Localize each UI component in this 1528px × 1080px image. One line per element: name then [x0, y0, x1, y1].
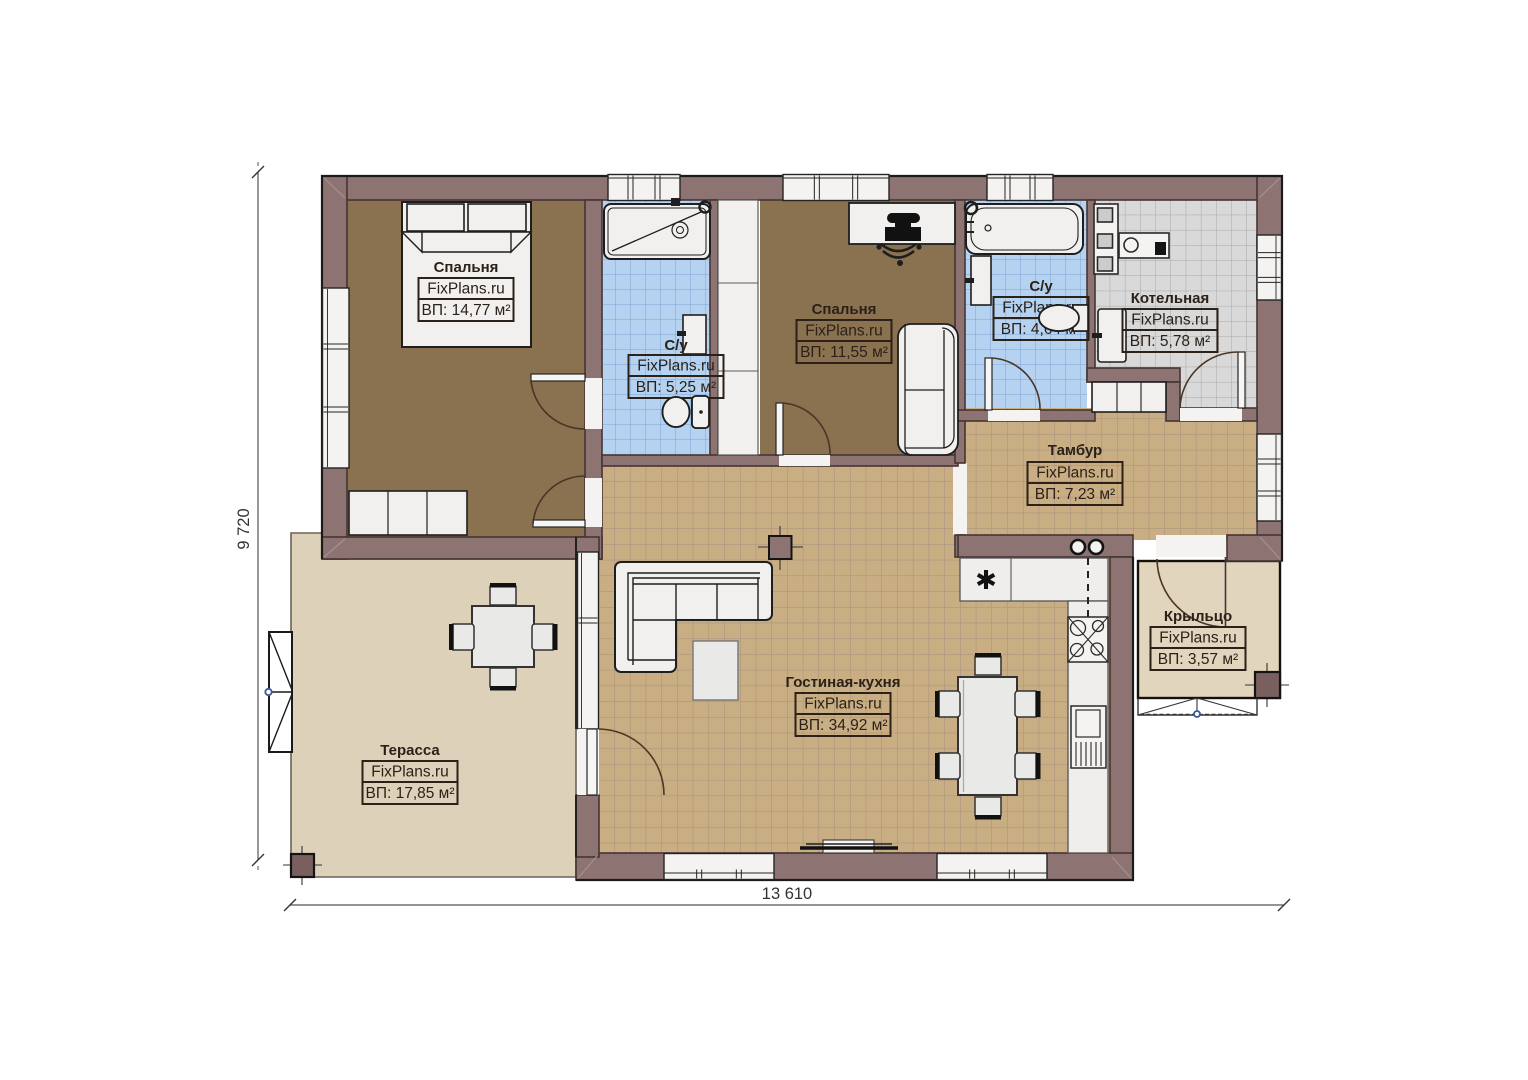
- svg-text:ВП: 7,23 м²: ВП: 7,23 м²: [1035, 486, 1115, 503]
- svg-text:FixPlans.ru: FixPlans.ru: [1131, 312, 1209, 329]
- svg-text:ВП: 11,55 м²: ВП: 11,55 м²: [800, 344, 888, 361]
- svg-text:FixPlans.ru: FixPlans.ru: [1159, 630, 1237, 647]
- svg-text:Тамбур: Тамбур: [1048, 442, 1102, 459]
- svg-text:✱: ✱: [975, 565, 997, 595]
- svg-text:Гостиная-кухня: Гостиная-кухня: [786, 674, 901, 691]
- svg-text:Спальня: Спальня: [812, 301, 877, 318]
- svg-text:ВП: 34,92 м²: ВП: 34,92 м²: [798, 717, 887, 734]
- svg-text:FixPlans.ru: FixPlans.ru: [804, 696, 882, 713]
- svg-text:ВП: 5,78 м²: ВП: 5,78 м²: [1130, 333, 1210, 350]
- svg-text:ВП: 3,57 м²: ВП: 3,57 м²: [1158, 651, 1238, 668]
- svg-text:FixPlans.ru: FixPlans.ru: [637, 358, 715, 375]
- svg-text:9 720: 9 720: [235, 508, 253, 549]
- svg-text:ВП: 5,25 м²: ВП: 5,25 м²: [636, 379, 716, 396]
- svg-text:FixPlans.ru: FixPlans.ru: [371, 764, 449, 781]
- svg-text:Крыльцо: Крыльцо: [1164, 608, 1232, 625]
- svg-text:FixPlans.ru: FixPlans.ru: [1036, 465, 1114, 482]
- svg-text:Терасса: Терасса: [380, 742, 440, 759]
- svg-text:Спальня: Спальня: [434, 259, 499, 276]
- svg-text:13 610: 13 610: [762, 885, 812, 903]
- svg-text:ВП: 17,85 м²: ВП: 17,85 м²: [365, 785, 454, 802]
- svg-text:FixPlans.ru: FixPlans.ru: [427, 281, 505, 298]
- svg-text:Котельная: Котельная: [1131, 290, 1210, 307]
- svg-text:С/у: С/у: [664, 337, 688, 354]
- svg-text:FixPlans.ru: FixPlans.ru: [805, 323, 883, 340]
- svg-text:С/у: С/у: [1029, 278, 1053, 295]
- svg-text:ВП: 14,77 м²: ВП: 14,77 м²: [421, 302, 510, 319]
